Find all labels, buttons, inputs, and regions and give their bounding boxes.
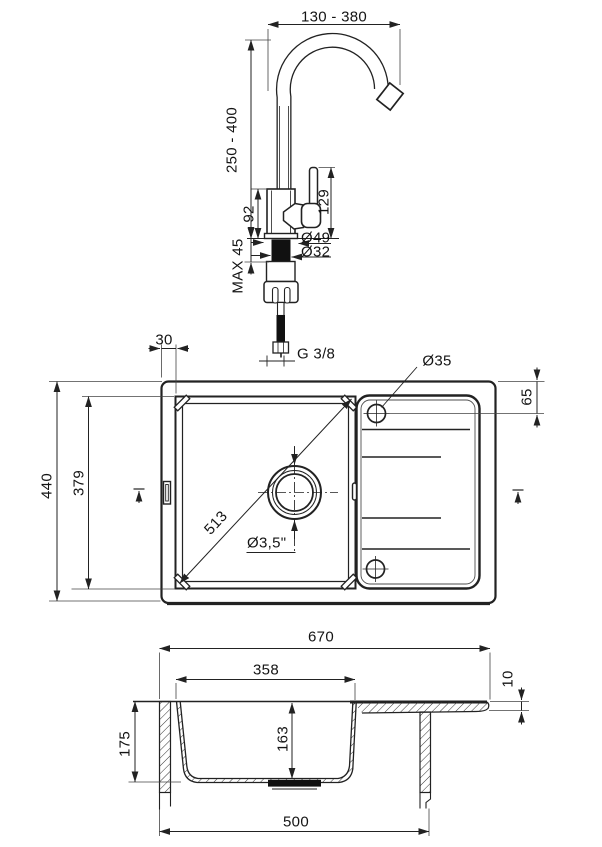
drawing-linework bbox=[0, 0, 602, 847]
dim-label-tap-hole-diameter: Ø35 bbox=[422, 354, 451, 369]
technical-drawing: 130 - 380 250 - 400 92 129 Ø49 Ø32 MAX 4… bbox=[0, 0, 602, 847]
dim-label-faucet-height: 250 - 400 bbox=[225, 107, 240, 173]
clamp-marker-right bbox=[513, 490, 524, 504]
dim-label-spout-reach: 130 - 380 bbox=[301, 10, 367, 25]
dim-label-overall-height: 175 bbox=[118, 731, 133, 757]
dim-label-overall-depth: 440 bbox=[40, 473, 55, 499]
dim-label-tap-hole-offset: 65 bbox=[520, 388, 535, 405]
dim-label-body-height: 92 bbox=[242, 205, 257, 222]
dim-label-max-thickness: MAX 45 bbox=[231, 238, 246, 293]
dim-label-bowl-depth: 163 bbox=[276, 726, 291, 752]
dim-label-cabinet-width: 500 bbox=[283, 815, 309, 830]
dim-label-rim-offset: 30 bbox=[155, 333, 172, 348]
dim-label-drain-diameter: Ø3,5" bbox=[247, 536, 286, 551]
dim-label-rim-thickness: 10 bbox=[501, 670, 516, 687]
dim-label-lever-height: 129 bbox=[317, 189, 332, 215]
dim-label-bowl-length: 379 bbox=[72, 470, 87, 496]
clamp-marker-left bbox=[134, 489, 145, 503]
dim-label-overall-width: 670 bbox=[308, 630, 334, 645]
dim-label-shank-diameter: Ø32 bbox=[301, 244, 330, 259]
dim-label-bowl-width: 358 bbox=[253, 663, 279, 678]
drain-outlet bbox=[268, 780, 321, 787]
sink-section-view bbox=[129, 649, 530, 837]
dim-label-thread: G 3/8 bbox=[297, 347, 335, 362]
sink-top-view bbox=[49, 345, 545, 604]
